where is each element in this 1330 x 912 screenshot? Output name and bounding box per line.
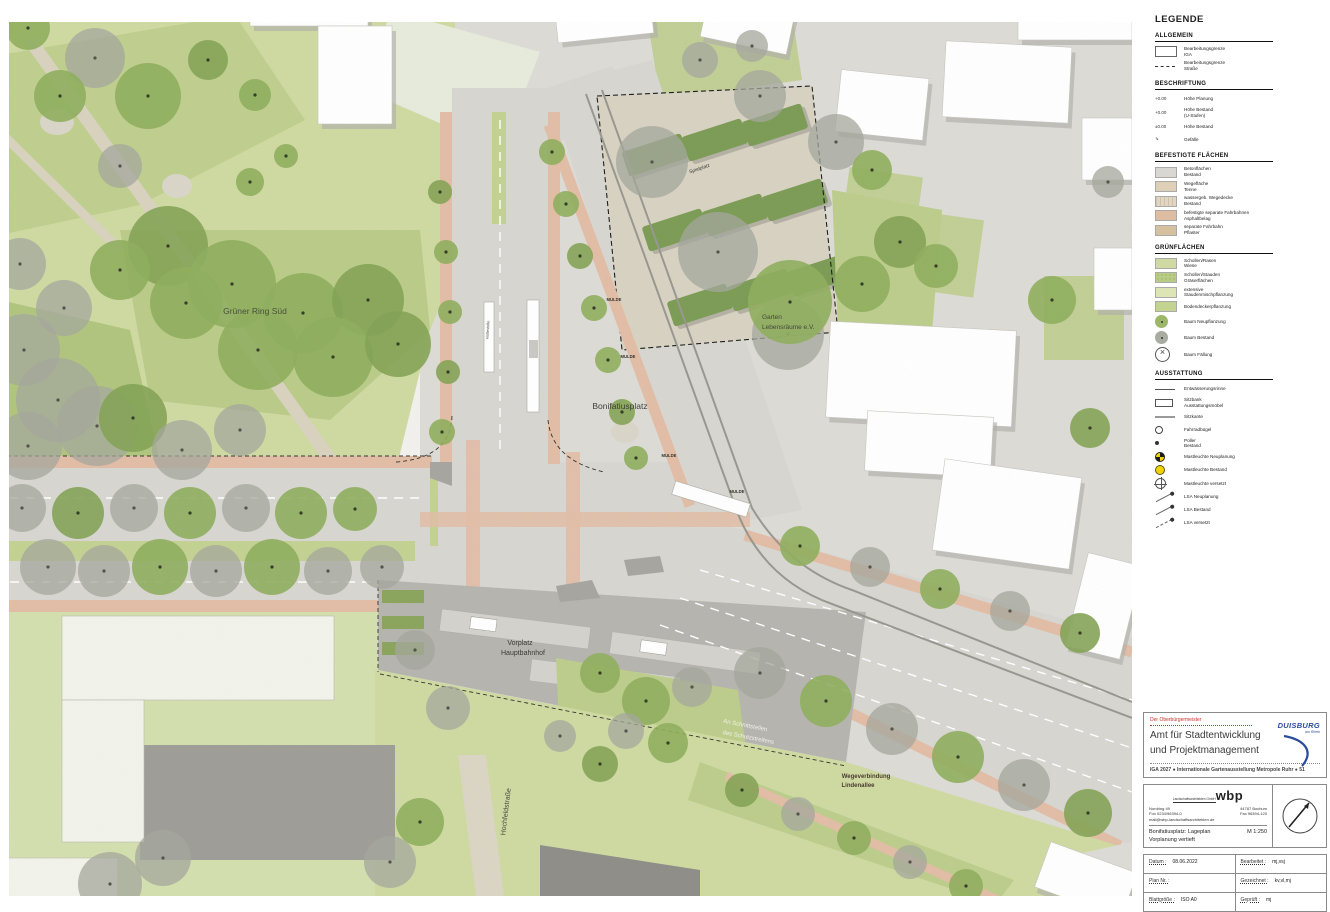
legend-item-label: Gefälle (1184, 137, 1199, 143)
legend-item: Baum Bestand (1155, 331, 1273, 344)
legend-item: Schollen/StaudenGräserflächen (1155, 272, 1273, 283)
legend-item: BetonflächenBestand (1155, 166, 1273, 177)
legend-item-line: (U-Stufen) (1184, 113, 1213, 119)
legend-item-label: extensiveStaudenmischpflanzung (1184, 287, 1233, 298)
table-row: Plan Nr. : Gezeichnet :kv,vl,mj (1144, 874, 1326, 893)
legend-item: Mastleuchte Bestand (1155, 465, 1273, 475)
baum-faellung-icon (1155, 347, 1179, 362)
bodendecker-icon (1155, 301, 1179, 312)
drawing-title: Bonifatiusplatz: Lageplan Vorplanung ver… (1149, 829, 1267, 843)
baum-bestand-swatch (1155, 331, 1168, 344)
rinne-icon (1155, 389, 1179, 390)
legend-item: +0.00Höhe Planung (1155, 94, 1273, 104)
gezeichnet-label: Gezeichnet : (1241, 878, 1269, 888)
leuchte-versetzt-swatch (1155, 478, 1166, 489)
legend-item-line: Sitzkante (1184, 414, 1203, 420)
radweg-swatch (1155, 210, 1177, 221)
height-bestand-swatch: ±0.00 (1155, 124, 1166, 129)
legend-item-label: Fahrradbügel (1184, 427, 1211, 433)
geprueft-label: Geprüft : (1241, 897, 1260, 907)
bearbeitet-label: Bearbeitet : (1241, 859, 1267, 869)
geprueft-value: mj (1266, 897, 1271, 907)
legend-item-line: Höhe Bestand (1184, 124, 1213, 130)
pflaster-icon (1155, 196, 1179, 207)
office-address: Nordring 49 Fon 0234/96394-0 mail@wbp-la… (1149, 806, 1267, 827)
legend-item-line: Baum Neupflanzung (1184, 319, 1226, 325)
titleblock: Der Oberbürgermeister DUISBURG am Rhein … (1143, 712, 1327, 912)
legend-item: LSA Neuplanung (1155, 492, 1273, 502)
legend-item-label: LSA versetzt (1184, 520, 1210, 526)
lsa-versetzt-icon (1155, 523, 1179, 524)
legend-item-line: Bodendeckerpflanzung (1184, 304, 1231, 310)
map-label: Wegeverbindung (842, 774, 891, 780)
legend-item-line: IGA (1184, 52, 1225, 58)
legend-title: LEGENDE (1155, 14, 1273, 25)
legend-item-label: Schollen/StaudenGräserflächen (1184, 272, 1220, 283)
map-label: Lindenallee (841, 783, 875, 789)
fahrbahn-swatch (1155, 225, 1177, 236)
legend-item: Sitzkante (1155, 412, 1273, 422)
lsa-neu-icon (1155, 497, 1179, 498)
map-label: Hauptbahnhof (501, 650, 545, 657)
leuchte-bestand-swatch (1155, 465, 1165, 475)
legend-item-label: Baum Bestand (1184, 335, 1214, 341)
rasen-swatch (1155, 258, 1177, 269)
blatt-label: Blattgröße : (1149, 897, 1175, 907)
sitzkante-swatch (1155, 416, 1175, 418)
legend-item-label: Schollen/RasenWiese (1184, 258, 1216, 269)
legend-item-label: wassergeb. WegedeckeBestand (1184, 195, 1233, 206)
height-bestand-stufen-swatch: +0.00 (1155, 110, 1166, 115)
legend-item-line: Höhe Bestand (1184, 107, 1213, 113)
datum-value: 08.06.2022 (1173, 859, 1198, 869)
map-label: Bonifatiusplatz (592, 401, 647, 411)
rinne-swatch (1155, 389, 1175, 390)
site-plan-sheet: Grüner Ring SüdBonifatiusplatzGartenLebe… (0, 0, 1132, 904)
legend-section-title: BESCHRIFTUNG (1155, 81, 1273, 90)
tenne-swatch (1155, 181, 1177, 192)
map-label: Haltestelle (485, 320, 491, 340)
legend-item: ⇘Gefälle (1155, 134, 1273, 144)
sitzbank-icon (1155, 399, 1179, 407)
baum-neu-icon (1155, 315, 1179, 328)
gezeichnet-value: kv,vl,mj (1275, 878, 1291, 888)
legend-item-label: BearbeitungsgrenzeIGA (1184, 46, 1225, 57)
legend-item-label: Höhe Bestand(U-Stufen) (1184, 107, 1213, 118)
drawing-scale: M 1:250 (1247, 829, 1267, 843)
legend-item: Entwässerungsrinne (1155, 384, 1273, 394)
leuchte-bestand-icon (1155, 465, 1179, 475)
map-label: Lebensräume e.V. (762, 324, 815, 331)
legend-item-line: befestigte separate Fahrbahnen (1184, 210, 1249, 216)
legend-item-label: LSA Neuplanung (1184, 494, 1218, 500)
legend-item: LSA Bestand (1155, 505, 1273, 515)
legend-item: separate FahrbahnPflaster (1155, 224, 1273, 235)
slope-arrow-swatch: ⇘ (1155, 136, 1159, 142)
drawing-title-line2: Vorplanung vertieft (1149, 837, 1210, 844)
legend-item: +0.00Höhe Bestand(U-Stufen) (1155, 107, 1273, 118)
radweg-icon (1155, 210, 1179, 221)
legend-item-line: Bestand (1184, 443, 1201, 449)
bearbeitet-value: mj,vsj (1272, 859, 1285, 869)
legend-item: SitzbankAusstattungsmöbel (1155, 397, 1273, 408)
legend-item-label: Baum Neupflanzung (1184, 319, 1226, 325)
wbp-logo: Landschaftsarchitekten GmbHwbp (1149, 790, 1267, 803)
legend-item-label: Höhe Bestand (1184, 124, 1213, 130)
legend-item-label: Höhe Planung (1184, 96, 1213, 102)
legend-item-line: LSA Neuplanung (1184, 494, 1218, 500)
legend-item: Mastleuchte versetzt (1155, 478, 1273, 489)
baum-faellung-swatch (1155, 347, 1170, 362)
plannr-label: Plan Nr. : (1149, 878, 1170, 888)
legend-item-line: Wiese (1184, 263, 1216, 269)
legend: LEGENDE ALLGEMEINBearbeitungsgrenzeIGABe… (1155, 14, 1273, 537)
legend-item-label: BetonflächenBestand (1184, 166, 1211, 177)
legend-item: Baum Fällung (1155, 347, 1273, 362)
duisburg-logo-text: DUISBURG (1258, 721, 1320, 730)
legend-item-label: SitzbankAusstattungsmöbel (1184, 397, 1223, 408)
office-addr-r2: Fax 96394-120 (1240, 811, 1267, 817)
office-mail: mail@wbp-landschaftsarchitekten.de (1149, 817, 1214, 823)
legend-section-title: BEFESTIGTE FLÄCHEN (1155, 153, 1273, 162)
legend-section-title: ALLGEMEIN (1155, 33, 1273, 42)
legend-item: WegeflächeTenne (1155, 181, 1273, 192)
titleblock-office-box: Landschaftsarchitekten GmbHwbp Nordring … (1143, 784, 1327, 848)
legend-item-line: Asphaltbelag (1184, 216, 1249, 222)
legend-item-line: Bestand (1184, 201, 1233, 207)
duisburg-logo: DUISBURG am Rhein (1258, 721, 1320, 770)
legend-item-line: LSA versetzt (1184, 520, 1210, 526)
height-plan-icon: +0.00 (1155, 96, 1179, 101)
legend-item-line: Gräserflächen (1184, 278, 1220, 284)
lsa-bestand-icon (1155, 510, 1179, 511)
baum-bestand-icon (1155, 331, 1179, 344)
office-column: Landschaftsarchitekten GmbHwbp Nordring … (1144, 785, 1273, 847)
legend-item-label: Sitzkante (1184, 414, 1203, 420)
map-label: MULDE (621, 354, 636, 359)
legend-item: ±0.00Höhe Bestand (1155, 121, 1273, 131)
height-bestand-icon: ±0.00 (1155, 124, 1179, 129)
baum-neu-swatch (1155, 315, 1168, 328)
legend-item-label: Mastleuchte Neuplanung (1184, 454, 1235, 460)
legend-item: Bodendeckerpflanzung (1155, 301, 1273, 312)
legend-item-label: Mastleuchte Bestand (1184, 467, 1227, 473)
map-label: MULDE (662, 453, 677, 458)
legend-item-label: Bodendeckerpflanzung (1184, 304, 1231, 310)
fahrradbuegel-icon (1155, 426, 1179, 434)
legend-item-line: Mastleuchte Neuplanung (1184, 454, 1235, 460)
legend-item-line: Tenne (1184, 187, 1208, 193)
legend-item-label: befestigte separate FahrbahnenAsphaltbel… (1184, 210, 1249, 221)
legend-item-line: Ausstattungsmöbel (1184, 403, 1223, 409)
lsa-versetzt-swatch (1156, 518, 1172, 527)
legend-item-line: Gefälle (1184, 137, 1199, 143)
fahrbahn-icon (1155, 225, 1179, 236)
legend-item-line: Entwässerungsrinne (1184, 386, 1226, 392)
lsa-neu-swatch (1156, 492, 1172, 501)
legend-item: Schollen/RasenWiese (1155, 258, 1273, 269)
legend-section: ALLGEMEINBearbeitungsgrenzeIGABearbeitun… (1155, 33, 1273, 72)
rasen-icon (1155, 258, 1179, 269)
leuchte-neu-swatch (1155, 452, 1165, 462)
legend-item-label: separate FahrbahnPflaster (1184, 224, 1223, 235)
legend-section-title: GRÜNFLÄCHEN (1155, 245, 1273, 254)
legend-item-label: Entwässerungsrinne (1184, 386, 1226, 392)
boundary-solid-icon (1155, 46, 1179, 57)
legend-item-line: Mastleuchte Bestand (1184, 467, 1227, 473)
legend-item-line: Bearbeitungsgrenze (1184, 46, 1225, 52)
legend-item: extensiveStaudenmischpflanzung (1155, 287, 1273, 298)
misch-swatch (1155, 287, 1177, 298)
pflaster-swatch (1155, 196, 1177, 207)
sitzbank-swatch (1155, 399, 1173, 407)
legend-item-line: Fahrradbügel (1184, 427, 1211, 433)
bodendecker-swatch (1155, 301, 1177, 312)
misch-icon (1155, 287, 1179, 298)
legend-item-label: Mastleuchte versetzt (1184, 481, 1226, 487)
legend-item-label: BearbeitungsgrenzeStraße (1184, 60, 1225, 71)
wbp-logo-sub: Landschaftsarchitekten GmbH (1173, 797, 1216, 803)
sitzkante-icon (1155, 416, 1179, 418)
boundary-solid-swatch (1155, 46, 1177, 57)
fahrradbuegel-swatch (1155, 426, 1163, 434)
slope-arrow-icon: ⇘ (1155, 136, 1179, 142)
legend-section: GRÜNFLÄCHENSchollen/RasenWieseSchollen/S… (1155, 245, 1273, 362)
legend-section: BEFESTIGTE FLÄCHENBetonflächenBestandWeg… (1155, 153, 1273, 235)
legend-item-label: Baum Fällung (1184, 352, 1212, 358)
legend-item-line: Pflaster (1184, 230, 1223, 236)
leuchte-neu-icon (1155, 452, 1179, 462)
legend-section: AUSSTATTUNGEntwässerungsrinneSitzbankAus… (1155, 371, 1273, 528)
duisburg-swoosh-icon (1280, 734, 1320, 768)
concrete-swatch (1155, 167, 1177, 178)
legend-section: BESCHRIFTUNG+0.00Höhe Planung+0.00Höhe B… (1155, 81, 1273, 144)
drawing-title-line1: Bonifatiusplatz: Lageplan (1149, 829, 1210, 836)
boundary-dashed-swatch (1155, 66, 1175, 67)
legend-item-line: Baum Bestand (1184, 335, 1214, 341)
paper-texture (0, 0, 1132, 904)
map-label: Garten (762, 314, 782, 321)
wbp-logo-text: wbp (1216, 788, 1244, 803)
legend-item: befestigte separate FahrbahnenAsphaltbel… (1155, 210, 1273, 221)
legend-item: BearbeitungsgrenzeIGA (1155, 46, 1273, 57)
datum-label: Datum : (1149, 859, 1167, 869)
leuchte-versetzt-icon (1155, 478, 1179, 489)
height-plan-swatch: +0.00 (1155, 96, 1166, 101)
height-bestand-stufen-icon: +0.00 (1155, 110, 1179, 115)
boundary-dashed-icon (1155, 66, 1179, 67)
legend-item-line: Höhe Planung (1184, 96, 1213, 102)
north-arrow-icon (1278, 794, 1322, 838)
poller-swatch (1155, 441, 1159, 445)
legend-item-label: PollerBestand (1184, 438, 1201, 449)
legend-item-line: Bestand (1184, 172, 1211, 178)
map-label: MULDE (607, 297, 622, 302)
legend-item-line: Mastleuchte versetzt (1184, 481, 1226, 487)
legend-item-line: Straße (1184, 66, 1225, 72)
legend-item: PollerBestand (1155, 438, 1273, 449)
table-row: Datum :08.06.2022 Bearbeitet :mj,vsj (1144, 855, 1326, 874)
legend-item: Mastleuchte Neuplanung (1155, 452, 1273, 462)
north-arrow-cell (1273, 785, 1326, 847)
legend-item-label: LSA Bestand (1184, 507, 1211, 513)
legend-section-title: AUSSTATTUNG (1155, 371, 1273, 380)
map-label: MULDE (730, 489, 745, 494)
client-label: Der Oberbürgermeister (1150, 717, 1252, 726)
legend-item: BearbeitungsgrenzeStraße (1155, 60, 1273, 71)
legend-item-line: Staudenmischpflanzung (1184, 292, 1233, 298)
legend-item: wassergeb. WegedeckeBestand (1155, 195, 1273, 206)
lsa-bestand-swatch (1156, 505, 1172, 514)
site-plan-map: Grüner Ring SüdBonifatiusplatzGartenLebe… (0, 0, 1132, 904)
map-label: Grüner Ring Süd (223, 306, 287, 316)
legend-item-line: Baum Fällung (1184, 352, 1212, 358)
legend-item-line: LSA Bestand (1184, 507, 1211, 513)
titleblock-table: Datum :08.06.2022 Bearbeitet :mj,vsj Pla… (1143, 854, 1327, 912)
legend-item-label: WegeflächeTenne (1184, 181, 1208, 192)
poller-icon (1155, 441, 1179, 445)
legend-item-line: Wegefläche (1184, 181, 1208, 187)
tenne-icon (1155, 181, 1179, 192)
legend-item: Baum Neupflanzung (1155, 315, 1273, 328)
titleblock-client-box: Der Oberbürgermeister DUISBURG am Rhein … (1143, 712, 1327, 778)
map-label: Vorplatz (507, 640, 533, 647)
concrete-icon (1155, 167, 1179, 178)
table-row: Blattgröße :ISO A0 Geprüft :mj (1144, 893, 1326, 911)
legend-item: LSA versetzt (1155, 518, 1273, 528)
blatt-value: ISO A0 (1181, 897, 1197, 907)
stauden-icon (1155, 272, 1179, 283)
legend-item: Fahrradbügel (1155, 425, 1273, 435)
stauden-swatch (1155, 272, 1177, 283)
